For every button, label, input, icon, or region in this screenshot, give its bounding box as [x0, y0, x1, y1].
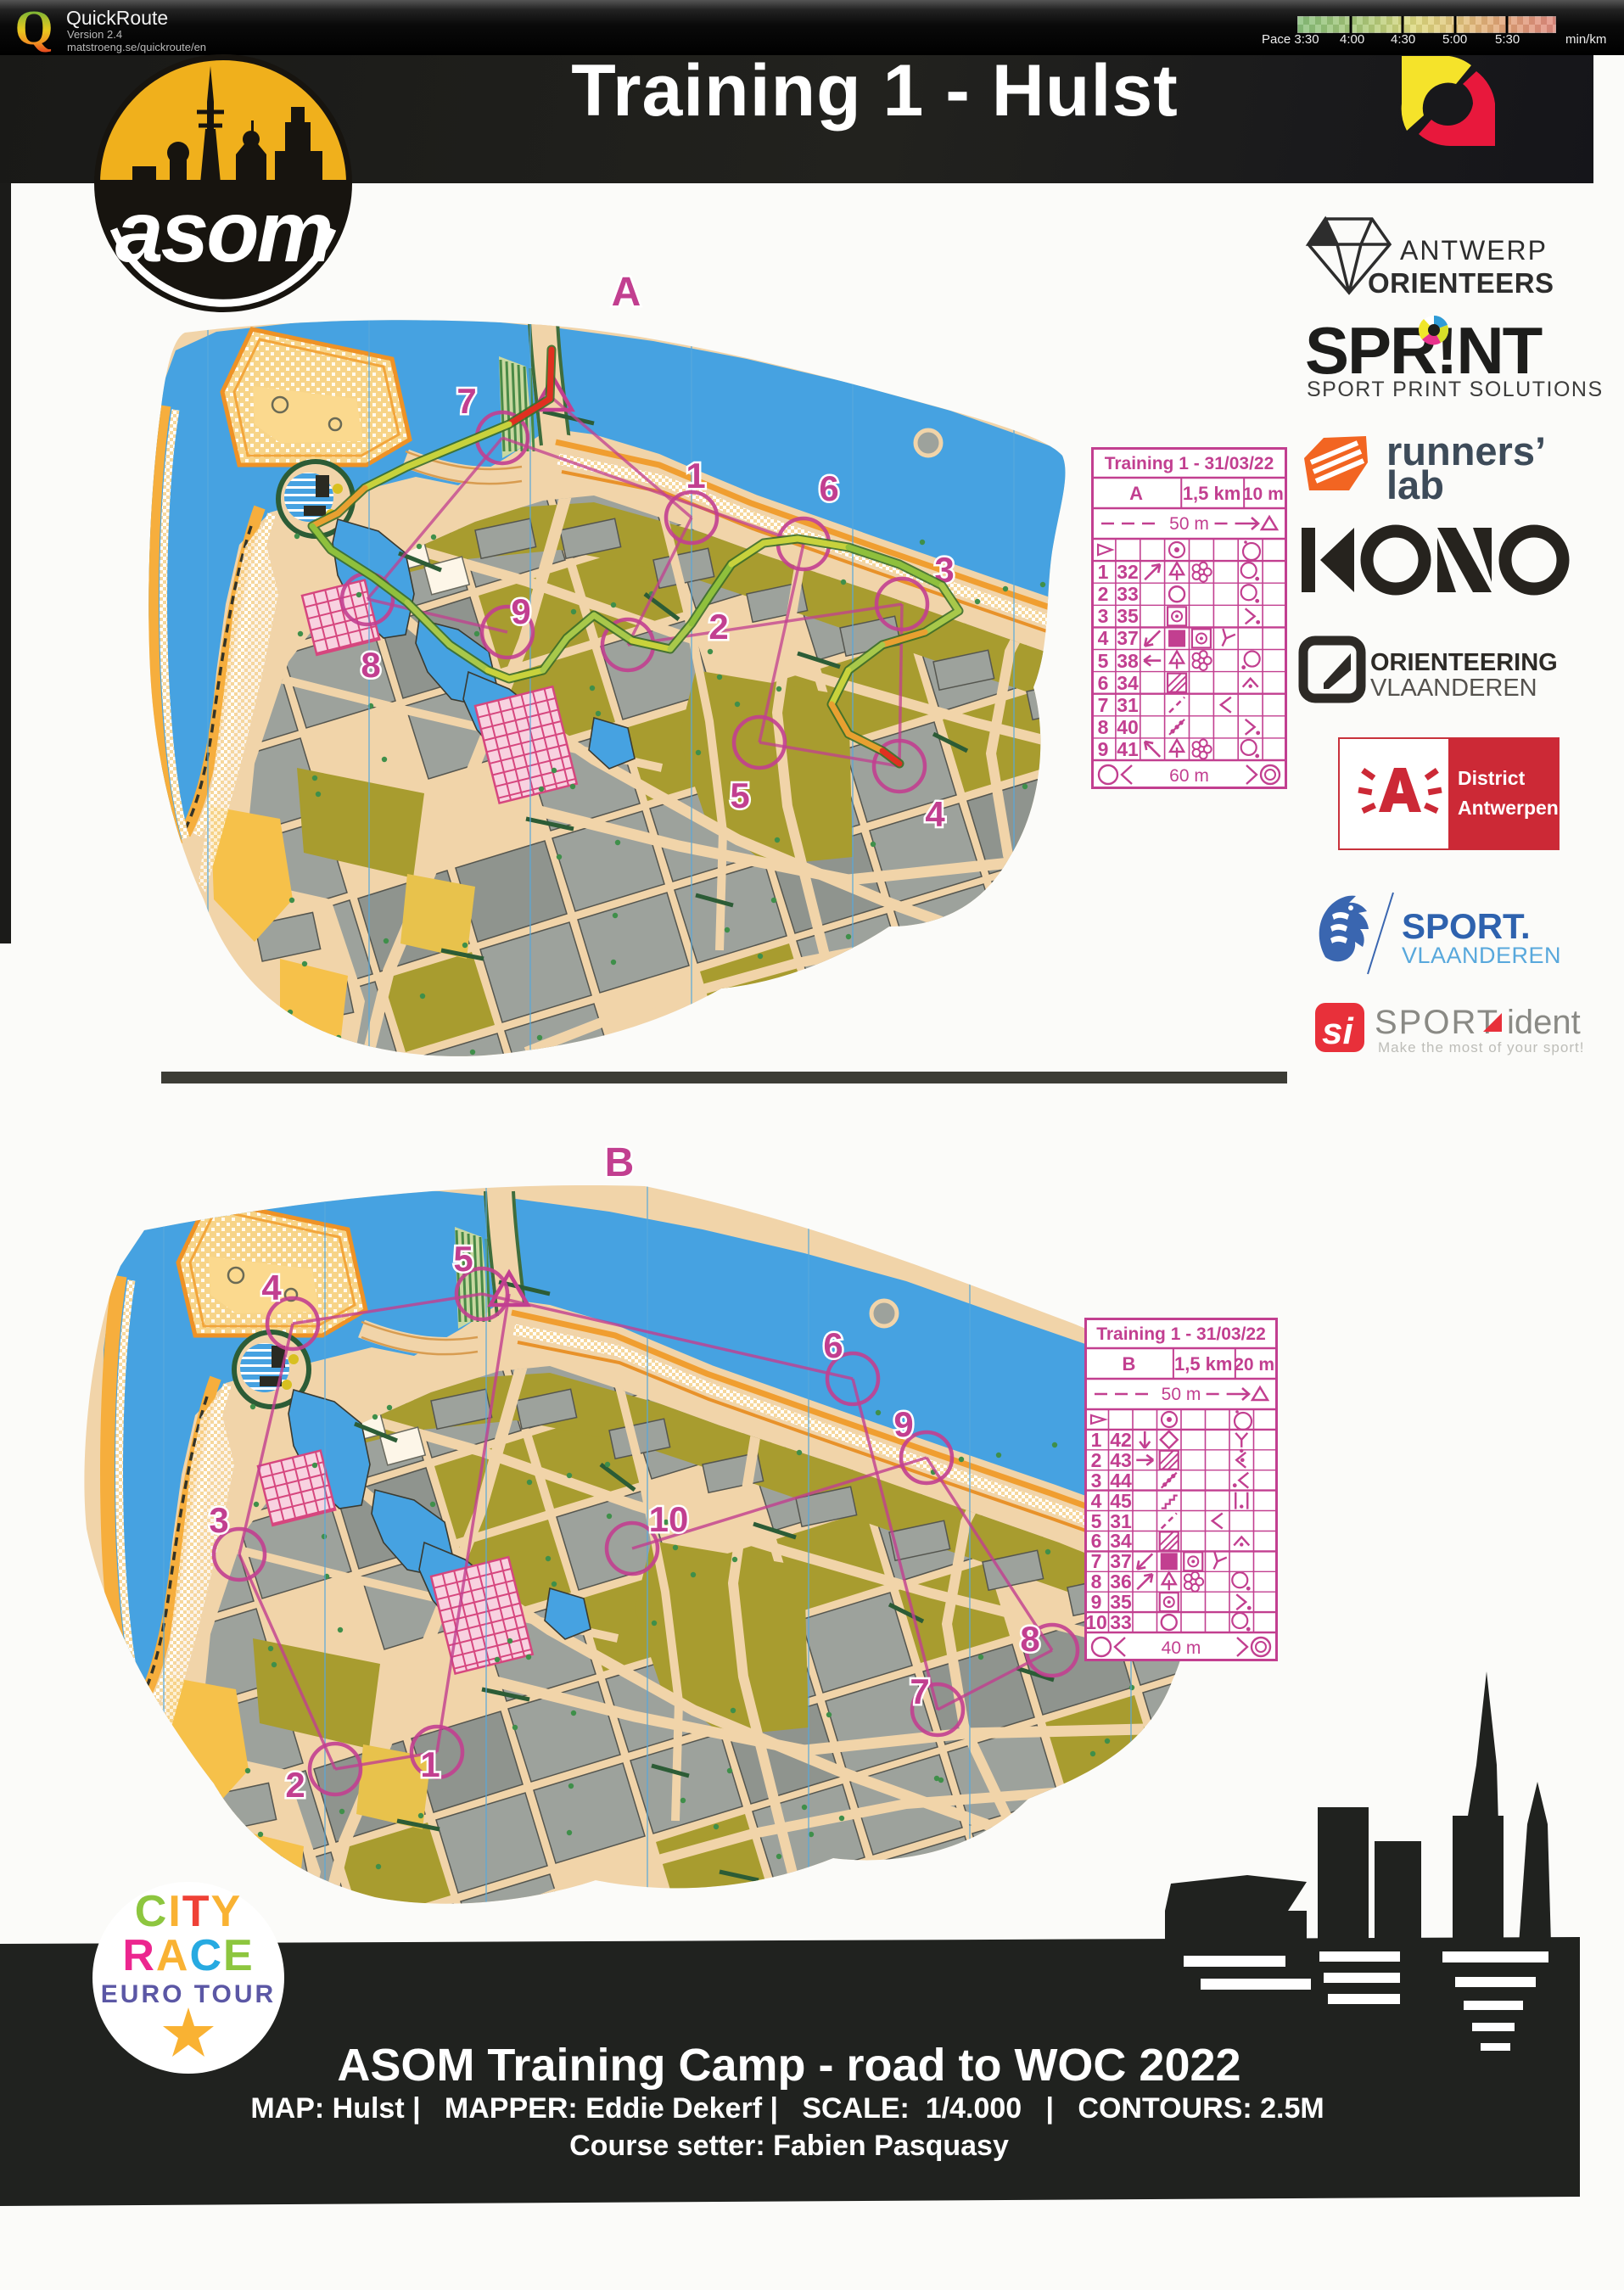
svg-text:Training 1 - 31/03/22: Training 1 - 31/03/22	[1105, 454, 1274, 473]
svg-text:10: 10	[649, 1499, 689, 1539]
svg-text:4: 4	[261, 1268, 282, 1307]
svg-text:7: 7	[1091, 1550, 1102, 1572]
svg-text:1,5 km: 1,5 km	[1183, 483, 1241, 504]
svg-text:40: 40	[1117, 716, 1139, 738]
svg-text:1: 1	[1098, 561, 1109, 583]
svg-text:4: 4	[1098, 627, 1109, 649]
svg-text:7: 7	[910, 1671, 929, 1711]
svg-text:6: 6	[1098, 672, 1109, 694]
svg-text:9: 9	[1098, 738, 1109, 760]
svg-text:34: 34	[1110, 1530, 1132, 1552]
svg-text:2: 2	[285, 1765, 305, 1805]
svg-text:6: 6	[1091, 1530, 1102, 1552]
svg-text:5: 5	[453, 1239, 473, 1279]
svg-text:37: 37	[1110, 1550, 1132, 1572]
svg-text:1,5 km: 1,5 km	[1174, 1353, 1233, 1375]
svg-text:B: B	[1122, 1353, 1135, 1375]
svg-text:7: 7	[456, 381, 476, 421]
svg-text:31: 31	[1117, 694, 1139, 716]
svg-text:20 m: 20 m	[1234, 1355, 1274, 1375]
svg-text:42: 42	[1110, 1429, 1132, 1451]
svg-text:2: 2	[1098, 583, 1109, 605]
svg-text:5: 5	[1098, 650, 1109, 672]
svg-text:50 m: 50 m	[1162, 1385, 1201, 1404]
svg-text:7: 7	[1098, 694, 1109, 716]
svg-text:A: A	[612, 270, 641, 315]
svg-text:33: 33	[1117, 583, 1139, 605]
svg-text:45: 45	[1110, 1490, 1132, 1512]
svg-text:Training 1 - 31/03/22: Training 1 - 31/03/22	[1096, 1324, 1266, 1344]
svg-text:9: 9	[893, 1404, 913, 1444]
svg-text:43: 43	[1110, 1449, 1132, 1471]
svg-text:6: 6	[823, 1325, 843, 1365]
svg-text:35: 35	[1110, 1591, 1132, 1613]
svg-text:1: 1	[686, 456, 705, 496]
svg-text:3: 3	[1091, 1470, 1102, 1492]
svg-text:8: 8	[1098, 716, 1109, 738]
svg-text:9: 9	[1091, 1591, 1102, 1613]
svg-text:34: 34	[1117, 672, 1139, 694]
svg-text:40 m: 40 m	[1162, 1638, 1201, 1658]
svg-text:32: 32	[1117, 561, 1139, 583]
svg-text:50 m: 50 m	[1169, 514, 1209, 534]
svg-text:36: 36	[1110, 1571, 1132, 1593]
svg-text:60 m: 60 m	[1169, 766, 1209, 786]
svg-text:35: 35	[1117, 605, 1139, 627]
svg-text:38: 38	[1117, 650, 1139, 672]
svg-text:5: 5	[730, 775, 749, 815]
svg-text:B: B	[605, 1140, 635, 1185]
svg-text:8: 8	[361, 645, 380, 685]
svg-text:1: 1	[420, 1744, 440, 1784]
svg-text:44: 44	[1110, 1470, 1132, 1492]
svg-text:4: 4	[1091, 1490, 1102, 1512]
svg-text:3: 3	[209, 1500, 228, 1540]
svg-text:6: 6	[819, 468, 838, 508]
svg-text:2: 2	[1091, 1449, 1102, 1471]
svg-text:41: 41	[1117, 738, 1139, 760]
svg-text:10: 10	[1085, 1611, 1107, 1633]
svg-text:A: A	[1129, 483, 1143, 504]
svg-text:37: 37	[1117, 627, 1139, 649]
svg-text:4: 4	[925, 794, 945, 834]
svg-text:8: 8	[1020, 1619, 1039, 1659]
svg-text:8: 8	[1091, 1571, 1102, 1593]
svg-text:33: 33	[1110, 1611, 1132, 1633]
svg-text:2: 2	[708, 607, 728, 647]
svg-text:9: 9	[511, 591, 530, 631]
svg-text:3: 3	[1098, 605, 1109, 627]
svg-text:10 m: 10 m	[1243, 484, 1284, 504]
svg-text:1: 1	[1091, 1429, 1102, 1451]
